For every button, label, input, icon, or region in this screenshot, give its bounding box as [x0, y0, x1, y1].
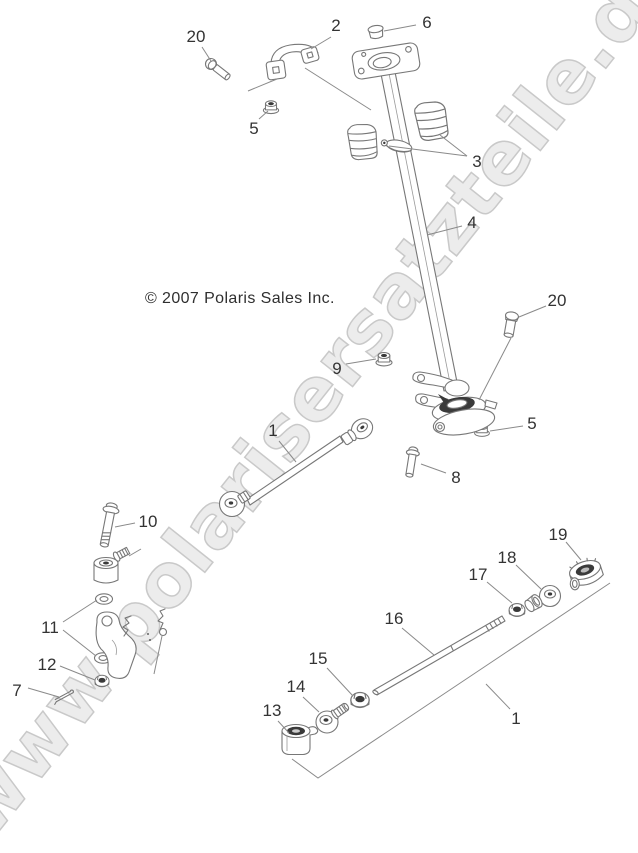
- nut-part-9: [376, 353, 392, 366]
- leader-line-part-15: [327, 668, 353, 696]
- leader-line-part-9: [346, 359, 376, 364]
- callout-label-part-16: 16: [385, 609, 404, 628]
- callout-label-part-5: 5: [527, 414, 536, 433]
- leader-line-part-11: [63, 600, 97, 622]
- callout-label-part-2: 2: [331, 16, 340, 35]
- leader-line-part-1: [486, 684, 510, 709]
- leader-line-part-17: [487, 582, 512, 603]
- callout-label-part-15: 15: [309, 649, 328, 668]
- rod-end-stud-line: [129, 549, 141, 556]
- callout-label-part-1: 1: [511, 709, 520, 728]
- bolt-part-20-right: [502, 311, 519, 338]
- nut-part-15: [351, 693, 369, 708]
- leader-line-part-7: [28, 688, 59, 697]
- leader-line-part-5: [259, 111, 268, 119]
- idler-bracket: [96, 612, 136, 678]
- callout-label-part-6: 6: [422, 13, 431, 32]
- steering-column-top-flange: [351, 42, 421, 80]
- callout-label-part-11: 11: [41, 618, 59, 637]
- washer-part-11-upper: [96, 594, 113, 604]
- callout-label-part-10: 10: [139, 512, 158, 531]
- nut-part-5-top: [263, 101, 278, 114]
- callout-label-part-14: 14: [287, 677, 306, 696]
- bushing-half-right-part-3: [413, 99, 450, 142]
- callout-label-part-19: 19: [549, 525, 568, 544]
- leader-line-part-14: [303, 697, 319, 712]
- leader-line-part-20: [519, 306, 546, 317]
- callout-label-part-18: 18: [498, 548, 517, 567]
- cotter-pin-part-7: [52, 690, 75, 705]
- leader-line-part-11: [63, 630, 96, 656]
- callout-label-part-20: 20: [187, 27, 206, 46]
- callout-label-part-13: 13: [263, 701, 282, 720]
- callout-label-part-17: 17: [469, 565, 488, 584]
- ball-joint-part-18: [523, 586, 561, 614]
- callout-label-part-20: 20: [548, 291, 567, 310]
- cap-part-6: [368, 25, 385, 40]
- leader-line-part-5: [490, 426, 523, 431]
- callout-label-part-7: 7: [12, 681, 21, 700]
- bolt-part-20-top: [203, 56, 232, 82]
- leader-line-part-10: [115, 523, 135, 527]
- bolt-part-8: [403, 446, 421, 478]
- leader-line-part-8: [421, 464, 446, 473]
- bushing-part-19: [563, 555, 606, 592]
- nut-part-17: [509, 604, 525, 617]
- parts-diagram-page: { "figure": { "copyright": "© 2007 Polar…: [0, 0, 638, 788]
- tie-rod-upper-part-1: [220, 415, 377, 517]
- callout-label-part-4: 4: [467, 213, 476, 232]
- clamp-tab-line: [248, 79, 277, 91]
- callout-labels-layer: 20265349205811011127131415161718191: [12, 13, 567, 728]
- callout-label-part-9: 9: [332, 359, 341, 378]
- attachment-mark-line: [154, 636, 162, 674]
- leader-line-part-4: [427, 226, 462, 235]
- leader-line-part-18: [516, 565, 541, 589]
- leader-line-part-6: [384, 25, 416, 31]
- clamp-part-2: [266, 44, 320, 80]
- leader-line-part-2: [311, 37, 331, 49]
- bolt20-to-mount-line: [479, 338, 511, 400]
- leader-line-part-12: [60, 666, 95, 680]
- callout-label-part-5: 5: [249, 119, 258, 138]
- leader-line-part-1: [279, 441, 296, 462]
- rod-end-lower-left: [94, 546, 130, 583]
- leader-line-part-20: [202, 47, 211, 61]
- leader-line-part-16: [402, 628, 434, 655]
- leader-line-part-19: [566, 542, 581, 560]
- callout-label-part-3: 3: [472, 152, 481, 171]
- copyright-text: © 2007 Polaris Sales Inc.: [145, 290, 335, 308]
- bolt-part-10: [96, 502, 120, 549]
- callout-label-part-8: 8: [451, 468, 460, 487]
- callout-label-part-1: 1: [268, 421, 277, 440]
- exploded-parts-diagram: 20265349205811011127131415161718191: [0, 0, 638, 788]
- bushing-half-left-part-3: [347, 123, 379, 161]
- assembly-bracket-line: [292, 583, 610, 778]
- ball-joint-part-14: [316, 701, 350, 733]
- bushing-part-13: [282, 725, 318, 755]
- nut-part-12: [95, 675, 109, 687]
- callout-label-part-12: 12: [38, 655, 57, 674]
